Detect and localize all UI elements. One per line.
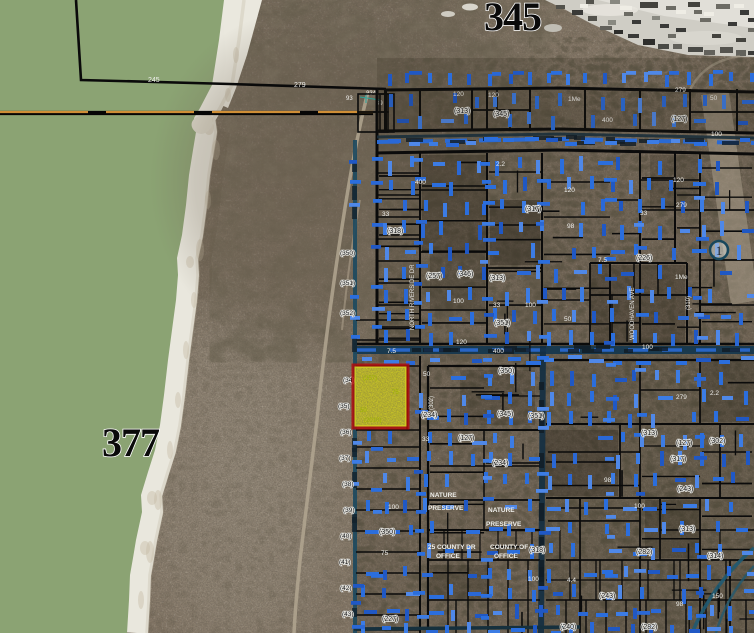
svg-text:(127): (127)	[676, 440, 692, 447]
svg-text:100: 100	[453, 298, 464, 305]
svg-text:(350): (350)	[379, 529, 395, 536]
svg-text:NORTH RIVERSIDE DR: NORTH RIVERSIDE DR	[410, 264, 416, 330]
svg-text:(351): (351)	[494, 320, 510, 327]
svg-text:7.5: 7.5	[387, 348, 396, 355]
svg-text:(351): (351)	[528, 413, 544, 420]
svg-text:75: 75	[392, 390, 399, 396]
svg-text:98: 98	[567, 223, 575, 230]
svg-text:(226): (226)	[636, 255, 652, 262]
svg-text:4.4: 4.4	[567, 577, 576, 584]
svg-text:(43): (43)	[342, 611, 354, 618]
svg-text:NATURE: NATURE	[488, 507, 515, 514]
svg-text:(38): (38)	[342, 481, 354, 488]
svg-text:(345): (345)	[497, 411, 513, 418]
svg-text:(234): (234)	[421, 412, 437, 419]
svg-text:100: 100	[388, 504, 399, 511]
svg-text:98: 98	[676, 601, 684, 608]
svg-text:50: 50	[564, 316, 572, 323]
svg-text:(314): (314)	[707, 553, 723, 560]
svg-text:(39): (39)	[343, 507, 355, 514]
svg-text:(302): (302)	[429, 396, 435, 410]
svg-text:(37): (37)	[339, 455, 351, 462]
svg-text:OFFICE: OFFICE	[436, 553, 460, 560]
svg-text:(257): (257)	[363, 376, 377, 382]
svg-text:120: 120	[564, 187, 575, 194]
svg-text:7.5: 7.5	[598, 257, 607, 264]
svg-text:(352): (352)	[340, 310, 355, 317]
svg-text:(310): (310)	[686, 296, 692, 310]
svg-text:345: 345	[484, 0, 541, 39]
svg-text:245: 245	[148, 77, 160, 84]
svg-text:(40): (40)	[340, 533, 352, 540]
svg-text:279: 279	[676, 394, 687, 401]
svg-text:(127): (127)	[458, 435, 474, 442]
svg-text:100: 100	[634, 503, 645, 510]
svg-text:(42): (42)	[340, 585, 352, 592]
svg-text:120: 120	[456, 339, 467, 346]
svg-text:(351): (351)	[340, 280, 355, 287]
svg-text:(227): (227)	[382, 616, 398, 623]
svg-text:400: 400	[493, 348, 504, 355]
svg-text:(313): (313)	[641, 430, 657, 437]
svg-text:(317): (317)	[670, 456, 686, 463]
svg-text:(41): (41)	[339, 559, 351, 566]
svg-text:279: 279	[676, 202, 687, 209]
svg-text:(313): (313)	[679, 526, 695, 533]
svg-text:PRESERVE: PRESERVE	[486, 521, 522, 528]
svg-text:33: 33	[382, 211, 390, 218]
svg-text:(234): (234)	[492, 460, 508, 467]
svg-text:2.2: 2.2	[496, 161, 505, 168]
svg-text:(318): (318)	[387, 228, 403, 235]
svg-text:(243): (243)	[677, 486, 693, 493]
svg-text:400: 400	[415, 179, 426, 186]
svg-text:(282): (282)	[641, 624, 657, 631]
svg-text:(317): (317)	[525, 206, 541, 213]
svg-text:100: 100	[525, 302, 536, 309]
svg-text:(240): (240)	[560, 624, 576, 631]
svg-text:2.2: 2.2	[710, 390, 719, 397]
svg-text:100: 100	[711, 131, 722, 138]
svg-text:(350): (350)	[498, 368, 514, 375]
svg-text:(36): (36)	[340, 429, 352, 436]
svg-text:33: 33	[493, 302, 501, 309]
svg-text:(318): (318)	[529, 547, 545, 554]
svg-text:50: 50	[360, 408, 367, 414]
svg-text:93: 93	[346, 96, 353, 102]
svg-text:33: 33	[640, 210, 648, 217]
svg-text:100: 100	[528, 576, 539, 583]
svg-text:(302): (302)	[709, 438, 725, 445]
svg-text:150: 150	[712, 593, 723, 600]
svg-text:25 COUNTY DR: 25 COUNTY DR	[428, 544, 476, 551]
svg-text:50: 50	[423, 371, 431, 378]
svg-text:OFFICE: OFFICE	[494, 553, 518, 560]
svg-text:33: 33	[422, 436, 430, 443]
svg-text:(350): (350)	[340, 250, 355, 257]
svg-text:COUNTY OF: COUNTY OF	[490, 544, 528, 551]
svg-text:1Me: 1Me	[675, 274, 688, 281]
svg-text:(313): (313)	[489, 275, 505, 282]
svg-text:100: 100	[642, 344, 653, 351]
svg-text:(346): (346)	[457, 271, 473, 278]
svg-text:(35): (35)	[338, 403, 350, 410]
svg-text:(282): (282)	[636, 549, 652, 556]
svg-text:1: 1	[716, 243, 723, 258]
svg-text:NATURE: NATURE	[430, 492, 457, 499]
svg-text:279: 279	[294, 82, 306, 89]
svg-text:120: 120	[673, 177, 684, 184]
svg-text:(2010): (2010)	[364, 418, 381, 424]
svg-text:(243): (243)	[599, 593, 615, 600]
svg-text:(257): (257)	[426, 273, 442, 280]
svg-text:WOODHAVEN AVE: WOODHAVEN AVE	[630, 288, 636, 340]
svg-text:98: 98	[604, 477, 612, 484]
svg-text:75: 75	[381, 550, 389, 557]
svg-text:PRESERVE: PRESERVE	[428, 505, 464, 512]
svg-text:377: 377	[102, 420, 160, 465]
